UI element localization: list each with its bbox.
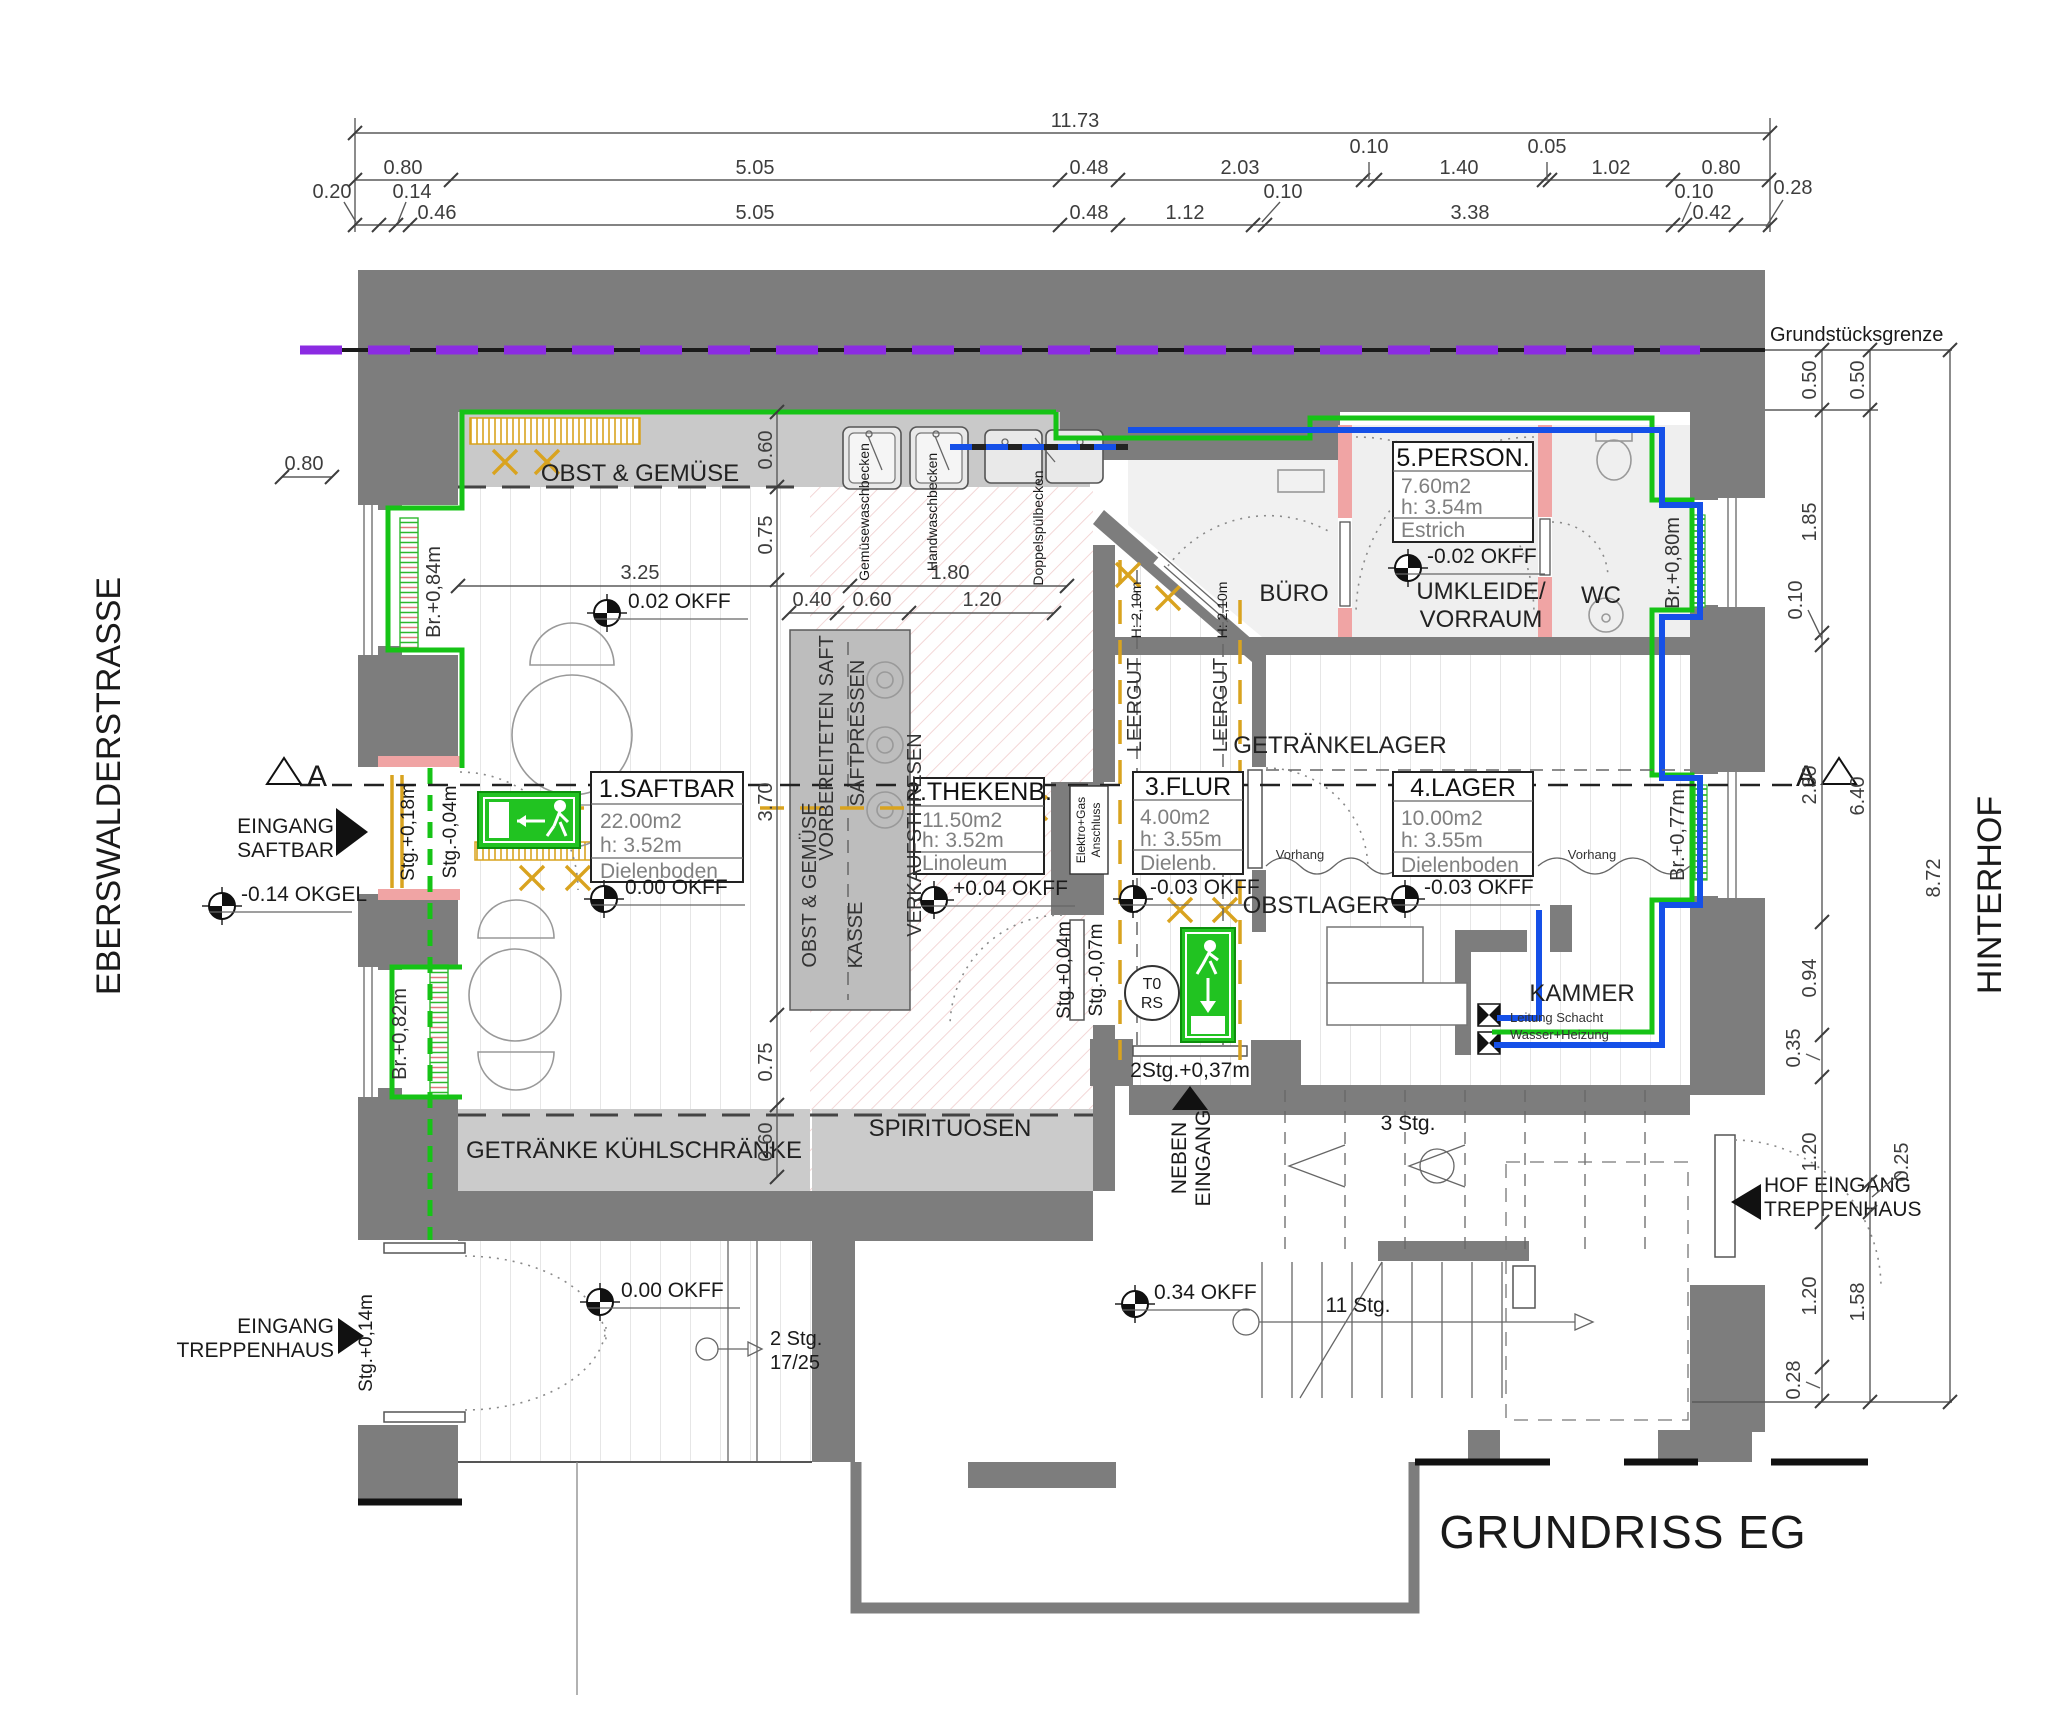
room-box-saftbar: 1.SAFTBAR 22.00m2 h: 3.52m Dielenboden xyxy=(591,772,743,883)
dim-label: 2.30 xyxy=(1799,766,1821,805)
dim-label: 0.80 xyxy=(285,453,324,475)
level-label: 0.02 OKFF xyxy=(628,590,731,613)
dim-label: 3.25 xyxy=(621,562,660,584)
room-height: h: 3.55m xyxy=(1401,829,1483,852)
floorplan-page: { "title": "GRUNDRISS EG", "context": { … xyxy=(0,0,2048,1727)
dim-label: 0.10 xyxy=(1350,136,1389,158)
stair-label: 2Stg.+0,37m xyxy=(1130,1059,1250,1082)
dim-label: 1.80 xyxy=(931,562,970,584)
zone-label: BÜRO xyxy=(1259,580,1328,607)
entrance-label: SAFTBAR xyxy=(237,839,334,862)
level-label: 0.34 OKFF xyxy=(1154,1281,1257,1304)
dim-label: 1.58 xyxy=(1847,1283,1869,1322)
zone-label: VORRAUM xyxy=(1420,606,1543,633)
room-height: h: 3.52m xyxy=(922,829,1004,852)
dim-label: 0.46 xyxy=(418,202,457,224)
zone-label: VERKAUFSTHRESEN xyxy=(904,733,926,936)
zone-label: GETRÄNKE KÜHLSCHRÄNKE xyxy=(466,1137,802,1164)
dim-label: 8.72 xyxy=(1923,859,1945,898)
dim-label: 2.03 xyxy=(1221,157,1260,179)
entrance-label: HOF EINGANG xyxy=(1764,1174,1911,1197)
entrance-label: TREPPENHAUS xyxy=(1764,1198,1922,1221)
court-structure xyxy=(856,1462,1414,1608)
zone-label: KASSE xyxy=(845,902,867,969)
dim-label: 1.02 xyxy=(1592,157,1631,179)
rs-label: RS xyxy=(1141,995,1163,1012)
zone-label: OBST & GEMÜSE xyxy=(541,460,739,487)
drawing-title: GRUNDRISS EG xyxy=(1439,1506,1806,1558)
dim-label: 1.20 xyxy=(963,589,1002,611)
zone-label: WC xyxy=(1581,582,1621,609)
dim-label: 0.20 xyxy=(313,181,352,203)
room-height: h: 3.55m xyxy=(1140,828,1222,851)
height-label: Br.+0,77m xyxy=(1667,789,1689,881)
dim-label: 1.20 xyxy=(1799,1277,1821,1316)
room-floor: Estrich xyxy=(1401,519,1465,542)
level-label: 0.00 OKFF xyxy=(621,1279,724,1302)
property-line-label: Grundstücksgrenze xyxy=(1770,324,1943,346)
dim-label: 0.60 xyxy=(755,431,777,470)
level-label: -0.03 OKFF xyxy=(1424,876,1534,899)
zone-label: LEERGUT xyxy=(1210,658,1232,752)
entrance-arrow-icon xyxy=(336,808,368,856)
zone-label: SAFTPRESSEN xyxy=(847,660,869,807)
dim-label: 0.42 xyxy=(1693,202,1732,224)
fixture-label: Vorhang xyxy=(1276,847,1324,862)
dim-label: 0.10 xyxy=(1675,181,1714,203)
height-label: Br.+0,80m xyxy=(1662,517,1684,609)
fixture-label: Handwaschbecken xyxy=(924,453,940,571)
stair-label: 11 Stg. xyxy=(1326,1294,1391,1317)
fixture-label: Elektro+Gas xyxy=(1074,797,1088,863)
room-name: 2.THEKENB. xyxy=(906,778,1052,806)
level-label: 0.00 OKFF xyxy=(625,876,728,899)
t0-rs-symbol: T0 RS xyxy=(1125,966,1179,1020)
section-label: A xyxy=(307,760,327,793)
dim-label: 0.75 xyxy=(755,516,777,555)
zone-label: H: 2,10m xyxy=(1214,582,1230,639)
zone-label: OBSTLAGER xyxy=(1243,892,1390,919)
height-label: Br.+0,82m xyxy=(389,988,411,1080)
zone-label: OBST & GEMÜSE xyxy=(799,802,821,967)
dim-label: 0.50 xyxy=(1847,361,1869,400)
fixture-label: Gemüsewaschbecken xyxy=(856,443,872,581)
room-box-personal: 5.PERSON. 7.60m2 h: 3.54m Estrich xyxy=(1393,442,1533,542)
zone-label: LEERGUT xyxy=(1124,658,1146,752)
room-area: 10.00m2 xyxy=(1401,807,1483,830)
room-name: 3.FLUR xyxy=(1145,773,1231,801)
dim-label: 1.40 xyxy=(1440,157,1479,179)
dim-label: 3.70 xyxy=(755,783,777,822)
dim-label: 0.10 xyxy=(1785,581,1807,620)
entrance-label: TREPPENHAUS xyxy=(176,1339,334,1362)
dim-label: 5.05 xyxy=(736,157,775,179)
room-floor: Dielenboden xyxy=(1401,854,1519,877)
shaft-symbol-icon xyxy=(1478,1004,1500,1026)
street-label-right: HINTERHOF xyxy=(1971,796,2009,994)
height-label: Br.+0,84m xyxy=(423,546,445,638)
height-label: Stg.+0,14m xyxy=(356,1294,377,1392)
dim-label: 0.25 xyxy=(1891,1143,1913,1182)
dim-label: 0.40 xyxy=(793,589,832,611)
zone-label: KAMMER xyxy=(1529,980,1634,1007)
t0-label: T0 xyxy=(1143,976,1162,993)
dim-label: 11.73 xyxy=(1051,110,1100,132)
room-name: 5.PERSON. xyxy=(1396,444,1529,472)
room-floor: Linoleum xyxy=(922,852,1007,875)
entrance-label: EINGANG xyxy=(237,1315,334,1338)
dim-label: 0.80 xyxy=(384,157,423,179)
dim-label: 6.40 xyxy=(1847,777,1869,816)
stair-label: 2 Stg. xyxy=(770,1328,822,1350)
dimensions-top: 11.73 0.80 5.05 0.48 2.03 1.40 1.02 0.80… xyxy=(313,110,1813,232)
entrance-label: NEBEN xyxy=(1168,1122,1191,1194)
street-label-left: EBERSWALDERSTRASSE xyxy=(90,577,128,995)
zone-label: GETRÄNKELAGER xyxy=(1233,732,1446,759)
exit-sign-vertical xyxy=(1181,928,1235,1042)
dim-label: 0.94 xyxy=(1799,959,1821,998)
stair-label: 17/25 xyxy=(770,1352,820,1374)
height-label: Stg.+0,18m xyxy=(398,783,419,881)
height-label: Stg.+0,04m xyxy=(1054,921,1075,1019)
dim-label: 1.85 xyxy=(1799,503,1821,542)
room-name: 4.LAGER xyxy=(1410,774,1516,802)
entrance-label: EINGANG xyxy=(1192,1110,1215,1207)
dim-label: 3.38 xyxy=(1451,202,1490,224)
room-box-flur: 3.FLUR 4.00m2 h: 3.55m Dielenb. xyxy=(1133,772,1243,875)
stair-label: 3 Stg. xyxy=(1381,1112,1436,1135)
dim-label: 0.14 xyxy=(393,181,432,203)
dim-label: 5.05 xyxy=(736,202,775,224)
dim-label: 1.12 xyxy=(1166,202,1205,224)
dim-label: 1.20 xyxy=(1799,1133,1821,1172)
dim-label: 0.28 xyxy=(1783,1361,1805,1400)
exit-sign-horizontal xyxy=(478,792,580,848)
dim-label: 0.48 xyxy=(1070,202,1109,224)
plan-canvas: T0 RS 1.SAFTBAR 22.00m2 h: 3.52m Dielenb… xyxy=(0,0,2048,1727)
dim-label: 0.60 xyxy=(853,589,892,611)
room-area: 7.60m2 xyxy=(1401,475,1471,498)
dim-label: 0.10 xyxy=(1264,181,1303,203)
fixture-label: Doppelspülbecken xyxy=(1030,470,1046,585)
fixture-label: Anschluss xyxy=(1089,803,1103,858)
dim-label: 0.35 xyxy=(1783,1029,1805,1068)
level-label: -0.14 OKGEL xyxy=(241,883,367,906)
dim-label: 0.48 xyxy=(1070,157,1109,179)
room-floor: Dielenb. xyxy=(1140,852,1217,875)
dim-label: 0.05 xyxy=(1528,136,1567,158)
section-marker-icon xyxy=(267,758,301,784)
fixture-label: Leitung Schacht xyxy=(1510,1010,1604,1025)
zone-label: H: 2,10m xyxy=(1128,582,1144,639)
level-label: -0.02 OKFF xyxy=(1427,545,1537,568)
entrance-label: EINGANG xyxy=(237,815,334,838)
corridor-floor xyxy=(458,1241,812,1462)
room-area: 22.00m2 xyxy=(600,810,682,833)
dim-label: 0.28 xyxy=(1774,177,1813,199)
room-height: h: 3.54m xyxy=(1401,496,1483,519)
level-label: +0.04 OKFF xyxy=(953,877,1068,900)
dim-label: 0.75 xyxy=(755,1043,777,1082)
room-name: 1.SAFTBAR xyxy=(599,775,735,803)
sink-icon xyxy=(843,427,901,489)
fixture-label: Wasser+Heizung xyxy=(1510,1027,1609,1042)
room-box-thekenbereich: 2.THEKENB. 11.50m2 h: 3.52m Linoleum xyxy=(906,778,1052,875)
height-label: Stg.-0,07m xyxy=(1086,924,1107,1017)
room-area: 4.00m2 xyxy=(1140,806,1210,829)
zone-label: UMKLEIDE/ xyxy=(1416,578,1546,605)
dim-label: 0.50 xyxy=(1799,361,1821,400)
dim-label: 0.60 xyxy=(755,1123,777,1162)
room-height: h: 3.52m xyxy=(600,834,682,857)
zone-label: SPIRITUOSEN xyxy=(869,1115,1032,1142)
room-box-lager: 4.LAGER 10.00m2 h: 3.55m Dielenboden xyxy=(1393,772,1533,877)
fixture-label: Vorhang xyxy=(1568,847,1616,862)
height-label: Stg.-0,04m xyxy=(440,786,461,879)
dim-label: 0.80 xyxy=(1702,157,1741,179)
